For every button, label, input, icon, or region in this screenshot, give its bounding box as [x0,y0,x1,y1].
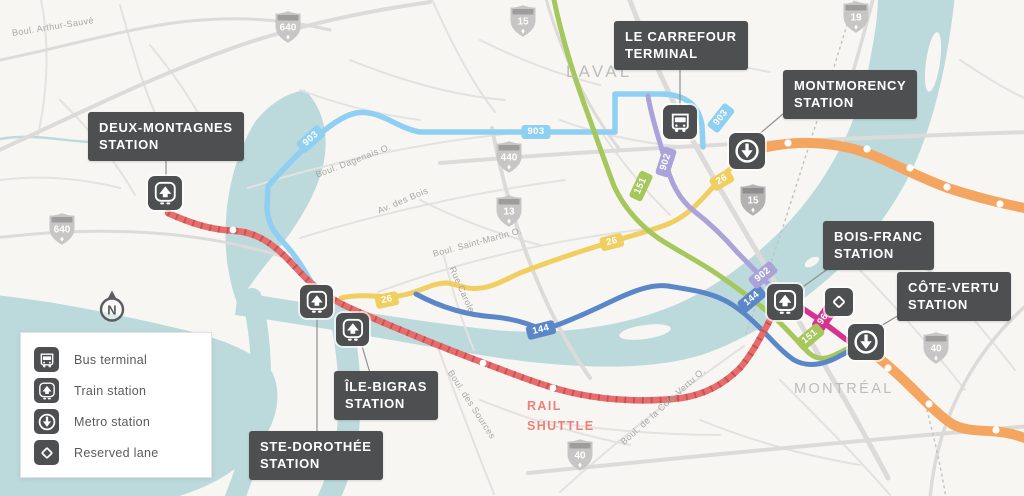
legend-item-reserved-lane: Reserved lane [34,437,211,468]
svg-text:15: 15 [747,196,759,207]
station-label-line2: STATION [99,136,233,153]
highway-shield-640-west: 640 [47,212,77,246]
rail-shuttle-label: RAIL SHUTTLE [527,396,594,436]
station-label-line1: MONTMORENCY [794,77,906,94]
station-label-line1: DEUX-MONTAGNES [99,119,233,136]
metro-station-icon [729,133,765,169]
svg-text:13: 13 [503,207,515,218]
station-label-deux-montagnes: DEUX-MONTAGNES STATION [88,112,244,161]
station-label-cote-vertu: CÔTE-VERTU STATION [897,272,1011,321]
train-station-icon [34,378,59,403]
highway-shield-13: 13 [494,194,524,228]
rail-shuttle-line2: SHUTTLE [527,416,594,436]
station-label-line1: BOIS-FRANC [834,228,923,245]
station-label-line2: STATION [834,245,923,262]
station-label-line1: CÔTE-VERTU [908,279,1000,296]
legend-item-label: Reserved lane [74,446,159,460]
station-label-bois-franc: BOIS-FRANC STATION [823,221,934,270]
legend-item-label: Bus terminal [74,353,147,367]
legend-item-bus-terminal: Bus terminal [34,344,211,375]
map-legend: Bus terminal Train station Metro station… [20,332,212,478]
highway-shield-40: 40 [565,438,595,472]
station-label-montmorency: MONTMORENCY STATION [783,70,917,119]
highway-shield-40-east: 40 [921,331,951,365]
reserved-lane-icon [34,440,59,465]
legend-item-label: Metro station [74,415,150,429]
station-label-line1: STE-DOROTHÉE [260,438,372,455]
highway-shield-19: 19 [841,0,871,34]
bus-terminal-icon [663,105,697,139]
train-station-icon [336,313,369,346]
reserved-lane-icon [825,288,853,316]
station-label-line1: LE CARREFOUR [625,28,737,45]
bus-terminal-icon [34,347,59,372]
station-label-line2: TERMINAL [625,45,737,62]
train-station-icon [767,284,803,320]
train-station-icon [300,285,333,318]
route-26-line [341,154,748,298]
station-label-line2: STATION [794,94,906,111]
compass-icon: N [97,290,127,324]
station-label-line2: STATION [345,395,427,412]
legend-item-train-station: Train station [34,375,211,406]
legend-item-metro-station: Metro station [34,406,211,437]
svg-text:440: 440 [501,153,518,164]
svg-text:19: 19 [850,13,862,24]
station-label-line2: STATION [908,296,1000,313]
station-label-line2: STATION [260,455,372,472]
svg-text:40: 40 [930,344,942,355]
transit-map: LAVAL MONTRÉAL Boul. Arthur-Sauvé Boul. … [0,0,1024,496]
train-station-icon [148,176,182,210]
svg-text:640: 640 [280,23,297,34]
city-label-montreal: MONTRÉAL [794,381,894,397]
legend-item-label: Train station [74,384,146,398]
station-label-ile-bigras: ÎLE-BIGRAS STATION [334,371,438,420]
highway-shield-440: 440 [494,140,524,174]
station-label-le-carrefour: LE CARREFOUR TERMINAL [614,21,748,70]
svg-text:40: 40 [574,451,586,462]
svg-text:15: 15 [517,17,529,28]
svg-text:N: N [107,303,116,318]
highway-shield-15-south: 15 [738,183,768,217]
highway-shield-640: 640 [273,10,303,44]
station-label-line1: ÎLE-BIGRAS [345,378,427,395]
station-label-ste-dorothee: STE-DOROTHÉE STATION [249,431,383,480]
rail-shuttle-line1: RAIL [527,396,594,416]
route-badge-903: 903 [521,125,550,139]
highway-shield-15: 15 [508,4,538,38]
metro-station-icon [848,324,884,360]
metro-station-icon [34,409,59,434]
svg-text:640: 640 [54,225,71,236]
